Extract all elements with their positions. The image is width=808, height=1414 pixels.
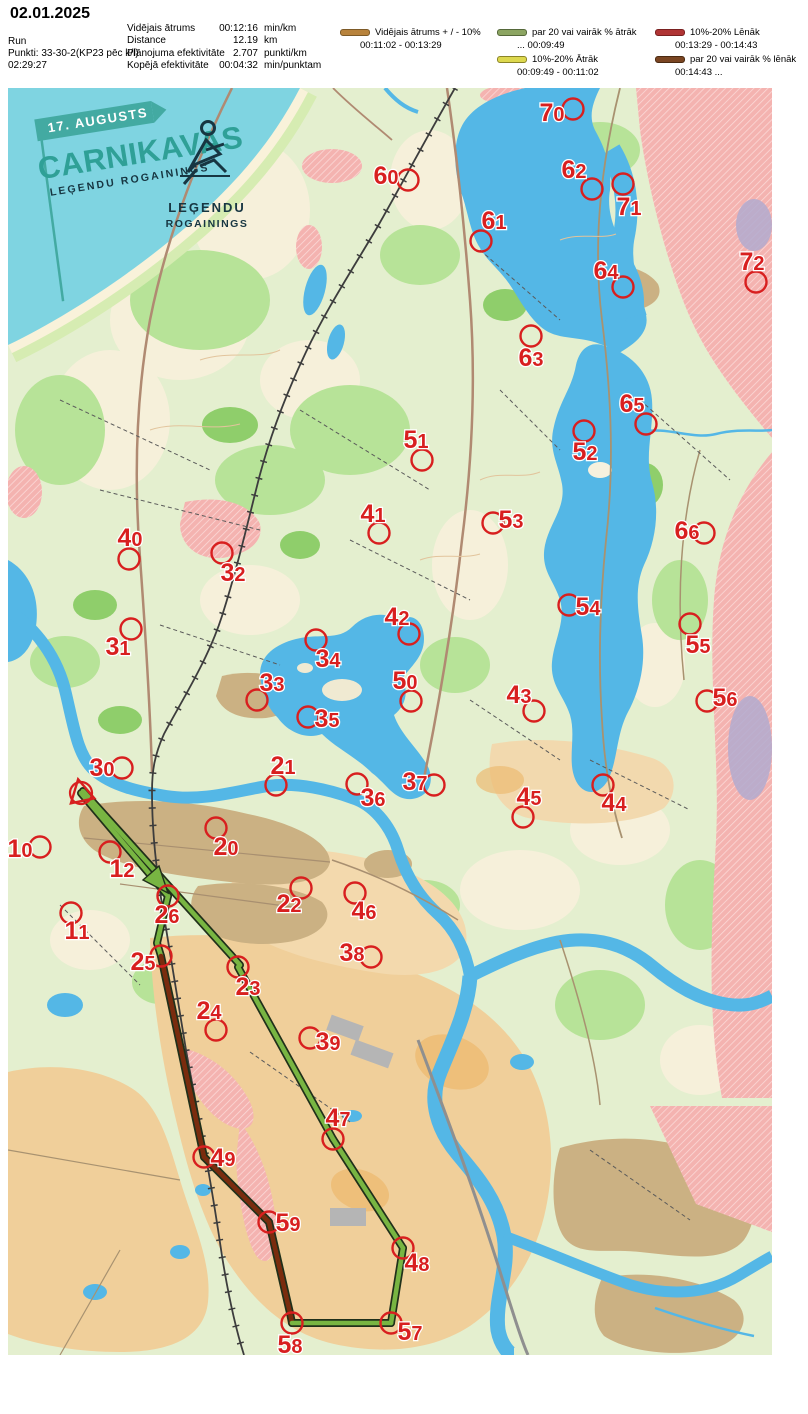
legend-times: ... 00:09:49 (517, 40, 637, 51)
control-number: 41 (360, 500, 385, 528)
control-number: 22 (276, 890, 301, 918)
control-number: 50 (392, 667, 417, 695)
control-number: 72 (739, 248, 764, 276)
stat-value: 2.707 (196, 48, 258, 59)
legend-item: 10%-20% Lēnāk00:13:29 - 00:14:43 (655, 27, 760, 51)
control-number: 10 (8, 835, 33, 863)
legend-item: Vidējais ātrums + / - 10%00:11:02 - 00:1… (340, 27, 481, 51)
legend-item: par 20 vai vairāk % lēnāk00:14:43 ... (655, 54, 796, 78)
control-number: 40 (117, 524, 142, 552)
control-number: 20 (213, 833, 238, 861)
legend-times: 00:09:49 - 00:11:02 (517, 67, 599, 78)
logo-text-1: LEĢENDU (168, 200, 246, 215)
stat-unit: punkti/km (264, 48, 307, 59)
control-number: 66 (674, 517, 699, 545)
stat-value: 00:04:32 (196, 60, 258, 71)
stat-unit: km (264, 35, 277, 46)
control-number: 31 (105, 633, 130, 661)
legend-swatch-icon (655, 56, 685, 63)
control-number: 34 (315, 645, 341, 673)
control-number: 45 (516, 783, 541, 811)
legend-swatch-icon (655, 29, 685, 36)
control-number: 61 (481, 207, 506, 235)
stat-value: 12.19 (196, 35, 258, 46)
legend-label: 10%-20% Ātrāk (532, 54, 598, 65)
legend-label: par 20 vai vairāk % ātrāk (532, 27, 637, 38)
control-number: 64 (593, 257, 619, 285)
control-number: 54 (575, 593, 601, 621)
legend-label: 10%-20% Lēnāk (690, 27, 760, 38)
control-number: 47 (325, 1104, 350, 1132)
stat-unit: min/km (264, 23, 296, 34)
control-number: 39 (315, 1028, 340, 1056)
control-number: 21 (270, 752, 295, 780)
legend-times: 00:13:29 - 00:14:43 (675, 40, 760, 51)
control-number: 36 (360, 784, 385, 812)
control-number: 55 (685, 631, 710, 659)
control-number: 70 (539, 99, 564, 127)
control-number: 63 (518, 344, 543, 372)
control-number: 65 (619, 390, 644, 418)
control-number: 71 (616, 193, 641, 221)
control-number: 23 (235, 973, 260, 1001)
control-number: 35 (314, 705, 339, 733)
control-number: 57 (397, 1318, 422, 1346)
control-number: 11 (64, 917, 89, 945)
control-number: 62 (561, 156, 586, 184)
stat-unit: min/punktam (264, 60, 321, 71)
legend-label: Vidējais ātrums + / - 10% (375, 27, 481, 38)
control-number: 24 (196, 997, 222, 1025)
stat-label: Distance (127, 35, 166, 46)
control-number: 51 (403, 426, 428, 454)
control-number: 48 (404, 1249, 429, 1277)
legend-times: 00:11:02 - 00:13:29 (360, 40, 481, 51)
control-number: 59 (275, 1209, 300, 1237)
control-number: 38 (339, 939, 364, 967)
route-map: 17. AUGUSTS CARNIKAVAS LEĢENDU ROGAINING… (8, 88, 772, 1355)
control-number: 43 (506, 681, 531, 709)
report-date: 02.01.2025 (10, 5, 90, 23)
control-number: 44 (601, 789, 627, 817)
stat-label: Vidējais ātrums (127, 23, 195, 34)
control-number: 25 (130, 948, 155, 976)
control-number: 60 (373, 162, 398, 190)
points-summary: Punkti: 33-30-2(KP23 pēc k/l) (8, 48, 139, 59)
control-number: 46 (351, 897, 376, 925)
logo-text-2: ROGAININGS (166, 218, 249, 230)
control-number: 56 (712, 684, 737, 712)
stat-value: 00:12:16 (196, 23, 258, 34)
page: { "header": { "date": "02.01.2025", "run… (0, 0, 808, 1414)
control-number: 42 (384, 603, 409, 631)
legend-item: 10%-20% Ātrāk00:09:49 - 00:11:02 (497, 54, 599, 78)
legend-label: par 20 vai vairāk % lēnāk (690, 54, 796, 65)
control-number: 53 (498, 506, 523, 534)
legend-swatch-icon (497, 56, 527, 63)
control-number: 30 (89, 754, 114, 782)
control-number: 52 (572, 438, 597, 466)
control-number: 12 (109, 855, 134, 883)
legend-times: 00:14:43 ... (675, 67, 796, 78)
control-number: 49 (210, 1144, 235, 1172)
control-number: 37 (402, 768, 427, 796)
control-number: 26 (154, 901, 179, 929)
activity-type: Run (8, 36, 26, 47)
legend-swatch-icon (340, 29, 370, 36)
control-number: 32 (220, 559, 245, 587)
legend-item: par 20 vai vairāk % ātrāk... 00:09:49 (497, 27, 637, 51)
control-number: 33 (259, 669, 284, 697)
legend-swatch-icon (497, 29, 527, 36)
total-time: 02:29:27 (8, 60, 47, 71)
